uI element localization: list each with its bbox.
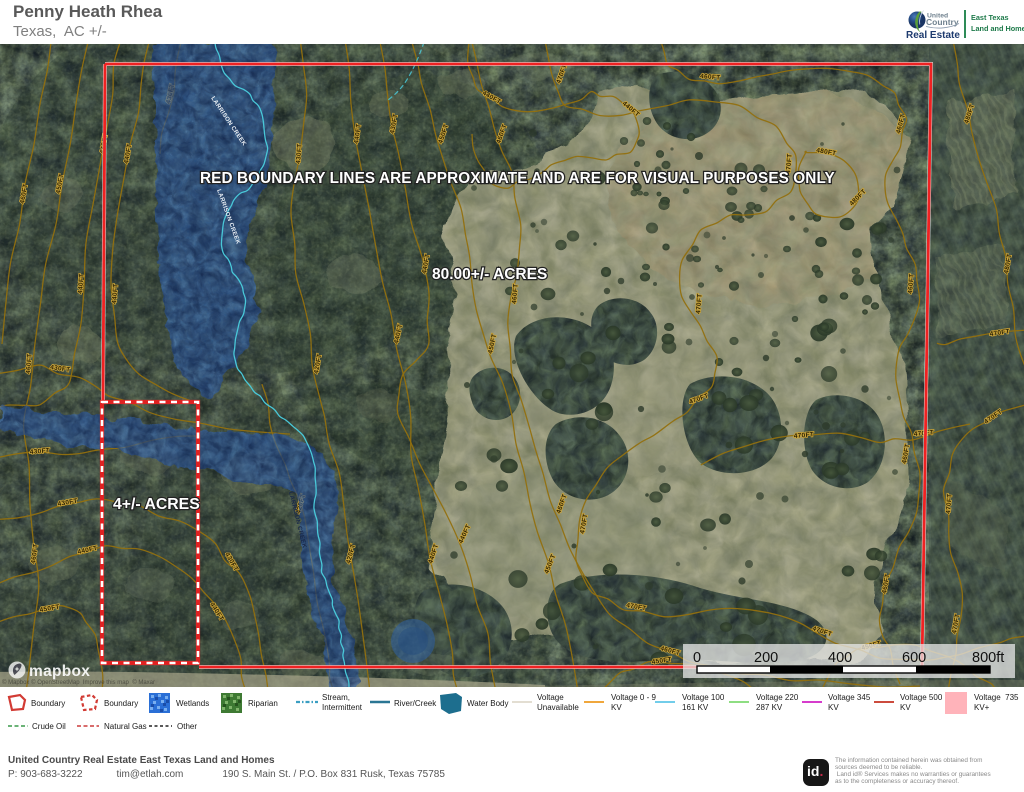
svg-text:Intermittent: Intermittent (322, 703, 363, 712)
svg-text:400: 400 (828, 650, 852, 666)
svg-text:mapbox: mapbox (29, 663, 90, 680)
svg-text:Boundary: Boundary (104, 699, 138, 708)
svg-text:Stream,: Stream, (322, 693, 350, 702)
svg-text:Crude Oil: Crude Oil (32, 722, 66, 731)
svg-text:KV: KV (828, 703, 839, 712)
svg-text:4+/- ACRES: 4+/- ACRES (113, 496, 200, 513)
svg-text:Voltage 500: Voltage 500 (900, 693, 943, 702)
svg-text:Voltage 100: Voltage 100 (682, 693, 725, 702)
svg-text:161 KV: 161 KV (682, 703, 709, 712)
svg-text:Other: Other (177, 722, 197, 731)
svg-text:KV: KV (611, 703, 622, 712)
svg-text:Wetlands: Wetlands (176, 699, 209, 708)
svg-text:Boundary: Boundary (31, 699, 65, 708)
svg-text:Land and Homes: Land and Homes (971, 24, 1024, 33)
svg-text:Real Estate: Real Estate (906, 30, 960, 41)
svg-text:© Mapbox © OpenStreetMap Impr: © Mapbox © OpenStreetMap Improve this ma… (2, 679, 155, 686)
svg-text:Voltage: Voltage (537, 693, 564, 702)
svg-text:Voltage 735: Voltage 735 (974, 693, 1019, 702)
svg-text:200: 200 (754, 650, 778, 666)
svg-text:RED BOUNDARY LINES ARE APPROXI: RED BOUNDARY LINES ARE APPROXIMATE AND A… (200, 170, 835, 187)
svg-text:KV+: KV+ (974, 703, 990, 712)
svg-text:800ft: 800ft (972, 650, 1004, 666)
svg-text:Voltage 220: Voltage 220 (756, 693, 799, 702)
svg-text:KV: KV (900, 703, 911, 712)
svg-text:East Texas: East Texas (971, 13, 1009, 22)
svg-text:Voltage 0 - 9: Voltage 0 - 9 (611, 693, 656, 702)
svg-text:Natural Gas: Natural Gas (104, 722, 147, 731)
svg-text:0: 0 (693, 650, 701, 666)
svg-text:600: 600 (902, 650, 926, 666)
svg-text:Water Body: Water Body (467, 699, 509, 708)
svg-text:River/Creek: River/Creek (394, 699, 437, 708)
svg-text:Unavailable: Unavailable (537, 703, 579, 712)
svg-text:80.00+/- ACRES: 80.00+/- ACRES (432, 266, 547, 283)
svg-text:Voltage 345: Voltage 345 (828, 693, 871, 702)
svg-text:Riparian: Riparian (248, 699, 278, 708)
svg-text:287 KV: 287 KV (756, 703, 783, 712)
